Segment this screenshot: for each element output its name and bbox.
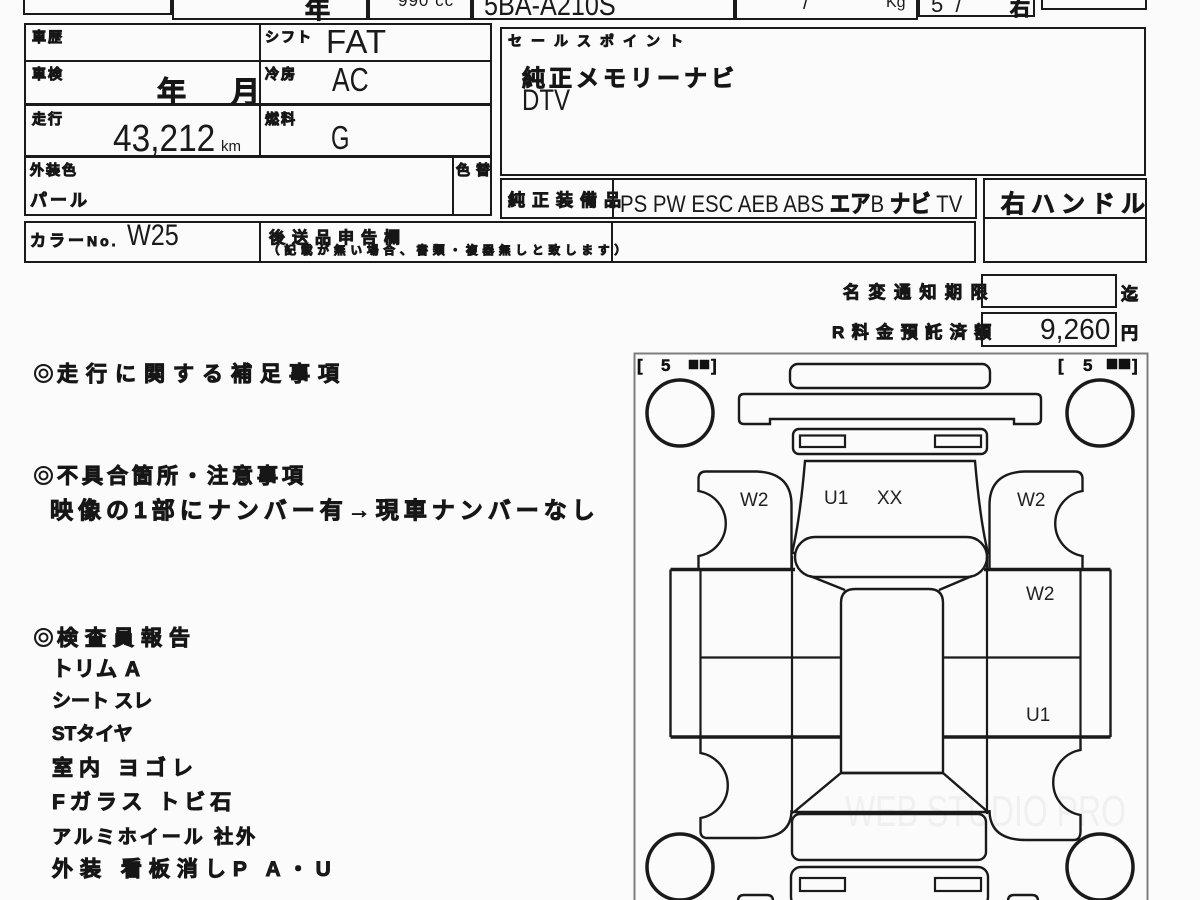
- svg-text:[: [: [1058, 356, 1064, 375]
- svg-text:U1: U1: [1026, 705, 1050, 726]
- svg-text:5: 5: [1083, 356, 1092, 375]
- svg-text:[: [: [637, 356, 643, 375]
- svg-text:W2: W2: [740, 490, 769, 511]
- svg-text:]: ]: [711, 356, 717, 375]
- svg-text:W2: W2: [1026, 584, 1055, 605]
- svg-text:U1: U1: [824, 488, 848, 509]
- svg-text:]: ]: [1132, 356, 1138, 375]
- svg-text:5: 5: [661, 356, 670, 375]
- svg-text:XX: XX: [877, 488, 903, 509]
- svg-text:W2: W2: [1017, 490, 1046, 511]
